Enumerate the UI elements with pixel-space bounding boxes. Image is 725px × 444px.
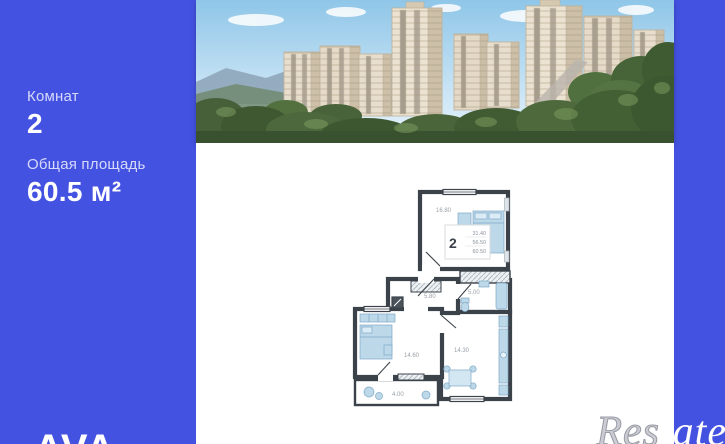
- rooms-value: 2: [27, 108, 79, 140]
- watermark-suffix: tate: [660, 409, 725, 444]
- rooms-label: Комнат: [27, 88, 79, 105]
- listing-promo-card: Комнат 2 Общая площадь 60.5 м² AVA: [0, 0, 725, 444]
- floor-plan: 16.80 5.80 5.00 14.60 14.30 4.00 2 31.40…: [348, 185, 518, 417]
- floorplan-panel: 16.80 5.80 5.00 14.60 14.30 4.00 2 31.40…: [196, 143, 674, 444]
- total-area-label: Общая площадь: [27, 156, 145, 173]
- bathroom-area-label: 5.00: [468, 290, 480, 296]
- hallway-area-label: 5.80: [424, 294, 436, 300]
- room-area-label: 14.60: [404, 353, 420, 359]
- rooms-stat: Комнат 2: [27, 88, 79, 140]
- photo-illustration: [196, 0, 674, 143]
- residential-complex-photo: [196, 0, 674, 143]
- total-area-stat: Общая площадь 60.5 м²: [27, 156, 145, 208]
- balcony-area-label: 4.00: [392, 392, 404, 398]
- bedroom-area-label: 16.80: [436, 208, 452, 214]
- total-area-value: 60.5 м²: [27, 176, 145, 208]
- window-sill: [398, 374, 424, 380]
- info-area-without-balcony: 56.50: [473, 240, 487, 246]
- ava-logo: AVA: [34, 427, 116, 444]
- info-total-area: 60.50: [473, 249, 487, 255]
- watermark-prefix: Res: [596, 409, 660, 444]
- apartment-info-box: 2 31.40 56.50 60.50: [445, 225, 490, 259]
- info-living-area: 31.40: [473, 231, 487, 237]
- info-rooms-count: 2: [449, 235, 457, 251]
- restate-watermark: Restate: [596, 411, 725, 444]
- kitchen-area-label: 14.30: [454, 348, 470, 354]
